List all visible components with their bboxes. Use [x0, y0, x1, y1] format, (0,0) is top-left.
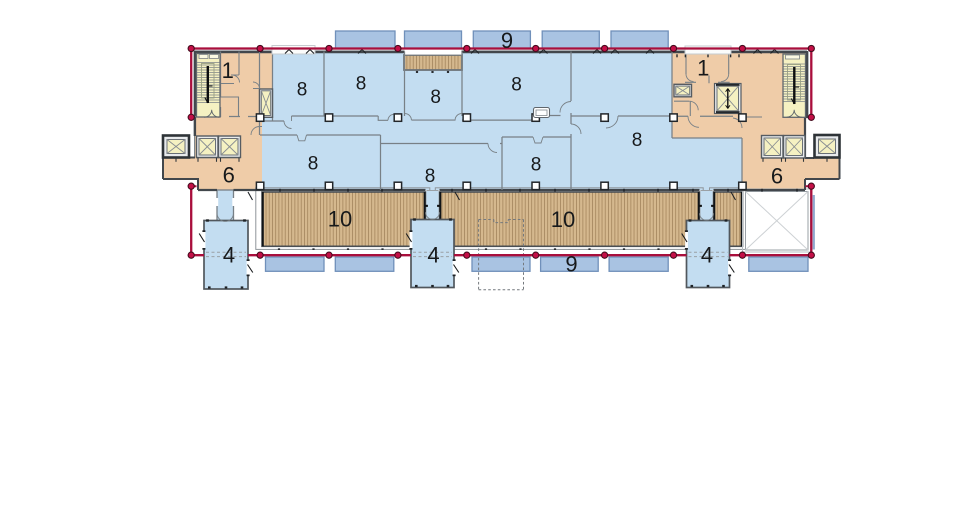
svg-text:1: 1 [697, 55, 709, 80]
svg-text:4: 4 [223, 242, 235, 267]
svg-text:9: 9 [565, 251, 577, 276]
svg-text:10: 10 [328, 206, 352, 231]
svg-text:8: 8 [511, 75, 522, 96]
svg-text:8: 8 [297, 80, 308, 101]
svg-text:1: 1 [222, 58, 234, 83]
svg-text:8: 8 [632, 130, 643, 151]
svg-text:8: 8 [425, 166, 436, 187]
svg-text:4: 4 [427, 242, 439, 267]
svg-text:6: 6 [223, 162, 235, 187]
svg-text:10: 10 [551, 207, 575, 232]
svg-text:8: 8 [430, 87, 441, 108]
svg-text:8: 8 [308, 154, 319, 175]
svg-text:6: 6 [771, 163, 783, 188]
svg-text:8: 8 [356, 74, 367, 95]
svg-text:8: 8 [531, 155, 542, 176]
svg-text:4: 4 [701, 242, 713, 267]
svg-text:9: 9 [501, 28, 513, 53]
